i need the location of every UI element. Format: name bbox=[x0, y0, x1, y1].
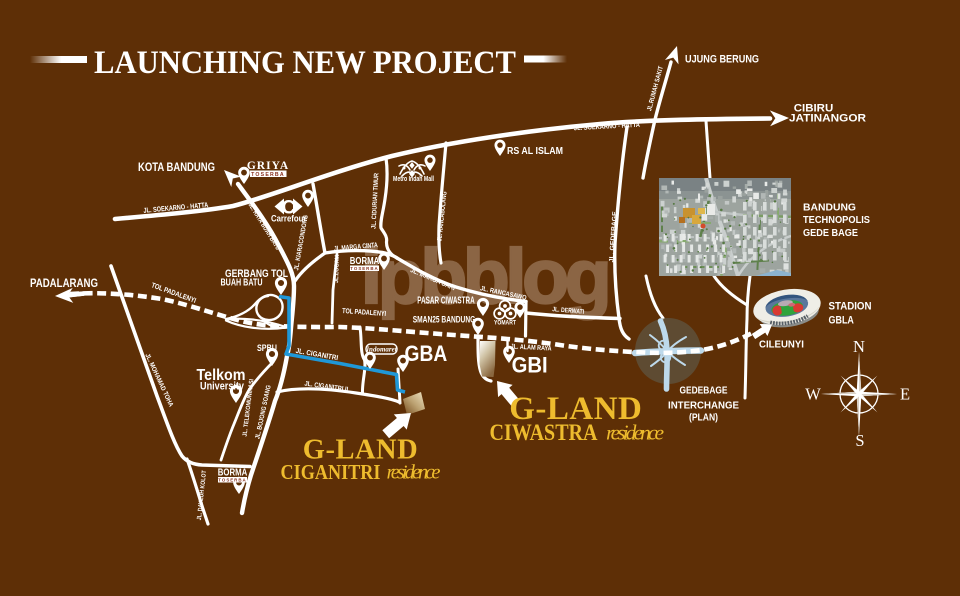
svg-text:N: N bbox=[853, 337, 865, 356]
svg-text:S: S bbox=[855, 431, 864, 450]
svg-text:Indomaret: Indomaret bbox=[365, 345, 397, 353]
svg-text:TOSERBA: TOSERBA bbox=[218, 478, 246, 483]
svg-text:BUAH BATU: BUAH BATU bbox=[221, 277, 263, 289]
svg-text:CIWASTRA: CIWASTRA bbox=[490, 420, 598, 445]
svg-text:GBA: GBA bbox=[405, 341, 448, 366]
svg-text:TOSERBA: TOSERBA bbox=[251, 172, 285, 178]
svg-text:residence: residence bbox=[606, 421, 664, 445]
svg-text:PADALARANG: PADALARANG bbox=[30, 276, 98, 290]
svg-text:JATINANGOR: JATINANGOR bbox=[789, 113, 866, 125]
svg-text:TOSERBA: TOSERBA bbox=[350, 266, 378, 271]
svg-text:KOTA BANDUNG: KOTA BANDUNG bbox=[138, 160, 215, 174]
svg-text:E: E bbox=[900, 385, 910, 404]
svg-text:Metro Indah Mall: Metro Indah Mall bbox=[393, 176, 434, 183]
svg-text:(PLAN): (PLAN) bbox=[689, 413, 718, 424]
svg-text:GRIYA: GRIYA bbox=[247, 160, 289, 172]
svg-text:STADION: STADION bbox=[829, 301, 872, 313]
svg-text:W: W bbox=[805, 385, 821, 404]
svg-text:TECHNOPOLIS: TECHNOPOLIS bbox=[803, 214, 870, 226]
svg-text:UJUNG BERUNG: UJUNG BERUNG bbox=[685, 54, 759, 66]
svg-text:University: University bbox=[200, 381, 245, 393]
svg-text:INTERCHANGE: INTERCHANGE bbox=[668, 401, 739, 412]
svg-text:PASAR CIWASTRA: PASAR CIWASTRA bbox=[417, 296, 475, 307]
svg-text:SMAN25 BANDUNG: SMAN25 BANDUNG bbox=[413, 315, 476, 326]
svg-text:JL.LOGAM: JL.LOGAM bbox=[333, 255, 341, 283]
svg-text:CIGANITRI: CIGANITRI bbox=[281, 460, 381, 484]
svg-text:GEDE BAGE: GEDE BAGE bbox=[803, 227, 858, 239]
svg-text:RS AL ISLAM: RS AL ISLAM bbox=[507, 145, 563, 157]
svg-text:GBLA: GBLA bbox=[829, 315, 854, 327]
svg-text:residence: residence bbox=[387, 462, 441, 484]
svg-text:YOMART: YOMART bbox=[494, 320, 516, 327]
svg-text:BANDUNG: BANDUNG bbox=[803, 202, 856, 214]
svg-text:LAUNCHING NEW PROJECT: LAUNCHING NEW PROJECT bbox=[94, 45, 516, 81]
svg-text:GEDEBAGE: GEDEBAGE bbox=[680, 386, 728, 397]
svg-text:CILEUNYI: CILEUNYI bbox=[759, 339, 804, 351]
svg-text:C: C bbox=[282, 197, 296, 218]
svg-text:GBI: GBI bbox=[512, 353, 548, 378]
svg-text:SPBU: SPBU bbox=[257, 343, 277, 354]
